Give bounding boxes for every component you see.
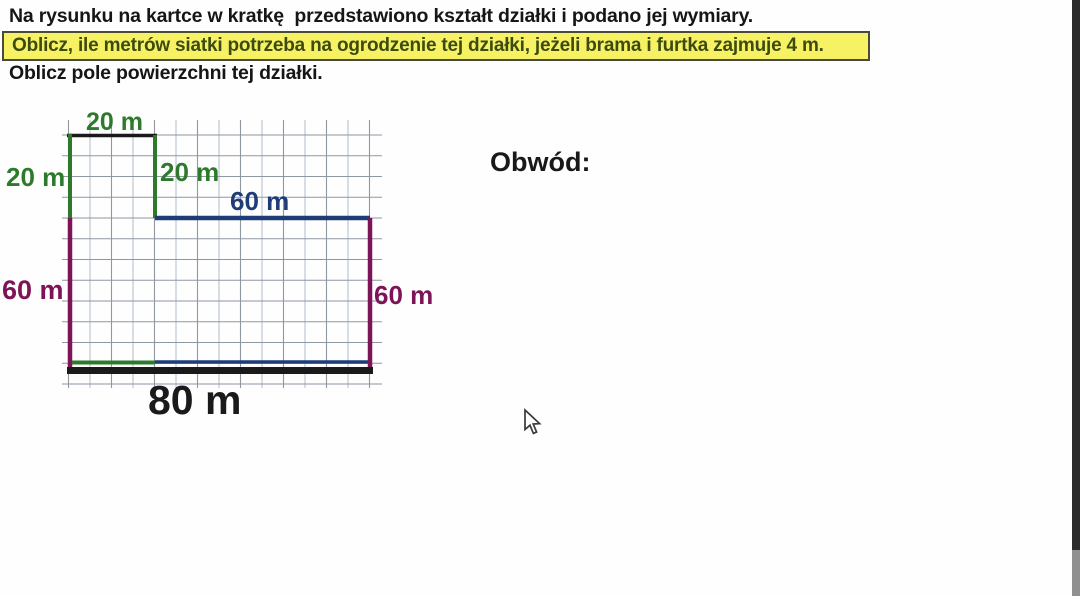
label-top-20m: 20 m (86, 108, 143, 136)
mouse-cursor (521, 408, 543, 438)
label-step-20m: 20 m (160, 157, 219, 187)
label-right-60m: 60 m (374, 280, 433, 310)
plot-diagram: 20 m 20 m 20 m 60 m 60 m 60 m 80 m (0, 0, 470, 440)
label-left-lower-60m: 60 m (2, 275, 64, 305)
grid-lines (62, 120, 382, 388)
worksheet-page: Na rysunku na kartce w kratkę przedstawi… (0, 0, 1080, 596)
right-edge-strip (1072, 0, 1080, 596)
label-left-upper-20m: 20 m (6, 162, 65, 192)
label-step-60m: 60 m (230, 186, 289, 216)
right-edge-strip-bottom (1072, 550, 1080, 596)
cursor-arrow-shape (525, 410, 540, 433)
perimeter-heading: Obwód: (490, 147, 590, 178)
label-bottom-80m: 80 m (148, 377, 241, 423)
